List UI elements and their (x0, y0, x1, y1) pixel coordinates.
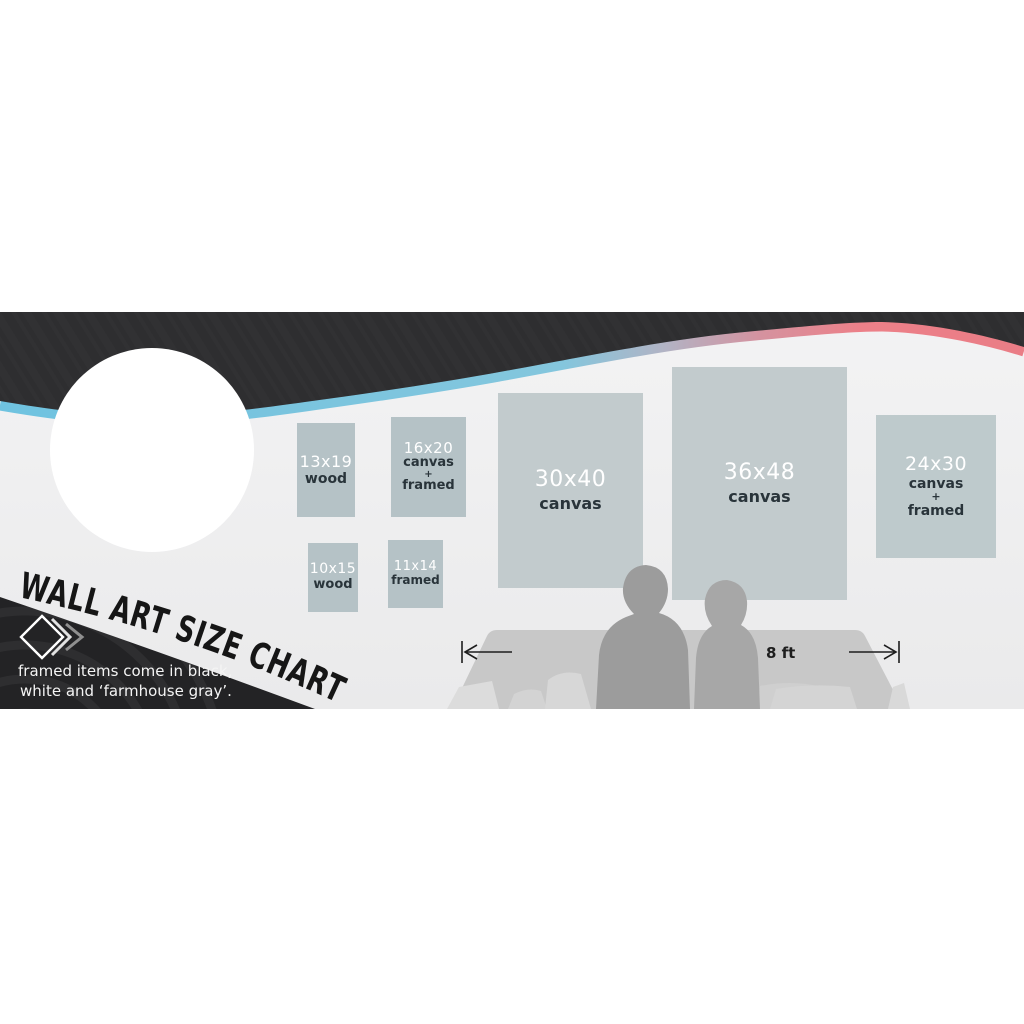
tagline-line1: framed items come in black, (18, 662, 232, 680)
person-silhouette-man (596, 565, 690, 709)
tagline-line2: white and ‘farmhouse gray’. (20, 682, 232, 700)
person-silhouette-woman (694, 580, 760, 709)
banner-page: 13x19 wood 16x20 canvas + framed 30x40 c… (0, 0, 1024, 1024)
measurement-label: 8 ft (766, 644, 795, 662)
banner-foreground: 8 ft WALL ART SIZE CHART framed items co… (0, 0, 1024, 1024)
